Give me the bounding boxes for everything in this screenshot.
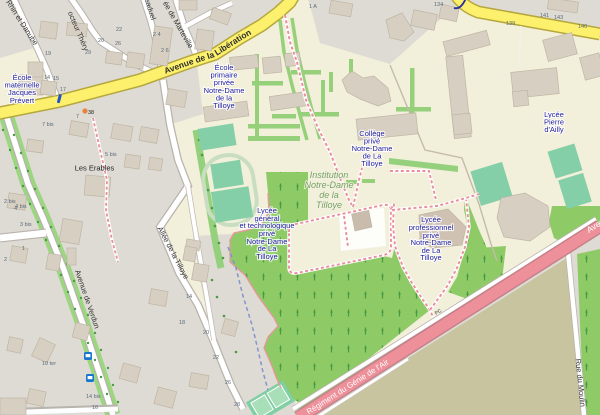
svg-text:Tilloye: Tilloye — [316, 200, 342, 210]
svg-text:28: 28 — [234, 402, 240, 408]
svg-text:19: 19 — [45, 51, 51, 57]
svg-text:Tilloye: Tilloye — [420, 253, 441, 262]
svg-text:Notre-Dame: Notre-Dame — [304, 180, 353, 190]
svg-text:Tilloye: Tilloye — [213, 101, 234, 110]
svg-text:26: 26 — [115, 41, 121, 47]
svg-text:15: 15 — [53, 76, 59, 82]
svg-text:139: 139 — [506, 21, 515, 27]
svg-text:26: 26 — [225, 380, 231, 386]
svg-text:14: 14 — [44, 75, 50, 81]
svg-text:3 bis: 3 bis — [20, 222, 32, 228]
svg-text:de la: de la — [319, 190, 339, 200]
svg-text:14 bis: 14 bis — [86, 394, 101, 400]
svg-text:17: 17 — [60, 87, 66, 93]
svg-text:29: 29 — [85, 50, 91, 56]
svg-text:Les Erables: Les Erables — [75, 164, 115, 173]
svg-text:Institution: Institution — [310, 170, 349, 180]
svg-text:2 6: 2 6 — [161, 48, 169, 54]
svg-text:7: 7 — [76, 114, 79, 120]
svg-text:Tilloye: Tilloye — [361, 159, 382, 168]
svg-text:38: 38 — [88, 110, 94, 116]
svg-text:d'Ailly: d'Ailly — [544, 125, 564, 134]
svg-text:1 A: 1 A — [309, 4, 317, 10]
svg-text:22: 22 — [213, 355, 219, 361]
svg-text:10 ter: 10 ter — [42, 361, 56, 367]
svg-text:20: 20 — [98, 38, 104, 44]
svg-text:4 bis: 4 bis — [15, 204, 27, 210]
svg-text:140: 140 — [578, 24, 587, 30]
svg-text:5 bis: 5 bis — [105, 152, 117, 158]
svg-text:134: 134 — [434, 2, 443, 8]
svg-text:18: 18 — [179, 320, 185, 326]
svg-text:16: 16 — [92, 405, 98, 411]
svg-text:2: 2 — [4, 257, 7, 263]
svg-text:14: 14 — [186, 294, 192, 300]
svg-text:20: 20 — [203, 330, 209, 336]
svg-text:22: 22 — [116, 27, 122, 33]
svg-text:1: 1 — [22, 246, 25, 252]
svg-text:7 bis: 7 bis — [42, 122, 54, 128]
svg-text:Prévert: Prévert — [10, 96, 35, 105]
svg-text:143: 143 — [554, 15, 563, 21]
svg-text:Tilloye: Tilloye — [256, 252, 277, 261]
svg-text:141: 141 — [540, 13, 549, 19]
svg-text:2 4: 2 4 — [153, 32, 161, 38]
